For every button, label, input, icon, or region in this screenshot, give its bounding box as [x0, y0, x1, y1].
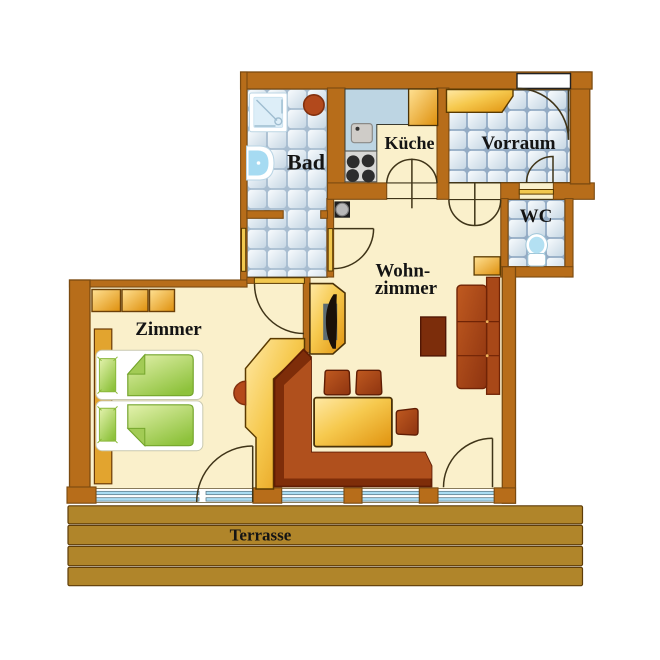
svg-text:Vorraum: Vorraum — [481, 133, 555, 154]
svg-text:Zimmer: Zimmer — [135, 319, 202, 340]
svg-text:zimmer: zimmer — [375, 278, 438, 299]
svg-text:WC: WC — [520, 206, 553, 227]
svg-text:Küche: Küche — [384, 133, 434, 153]
svg-text:Bad: Bad — [287, 150, 325, 175]
svg-text:Terrasse: Terrasse — [230, 526, 292, 545]
